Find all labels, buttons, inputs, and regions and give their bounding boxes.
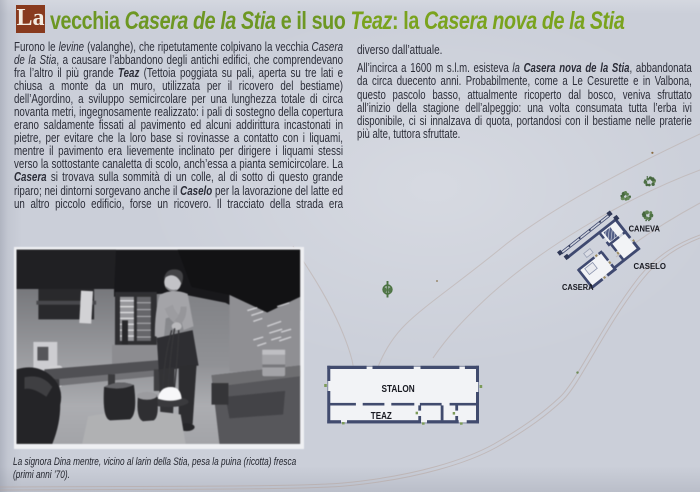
svg-text:CASERA: CASERA bbox=[562, 282, 594, 292]
svg-text:CASELO: CASELO bbox=[634, 261, 667, 271]
svg-text:TEAZ: TEAZ bbox=[371, 411, 392, 422]
svg-text:CANEVA: CANEVA bbox=[629, 224, 660, 234]
svg-text:STALON: STALON bbox=[382, 384, 415, 395]
